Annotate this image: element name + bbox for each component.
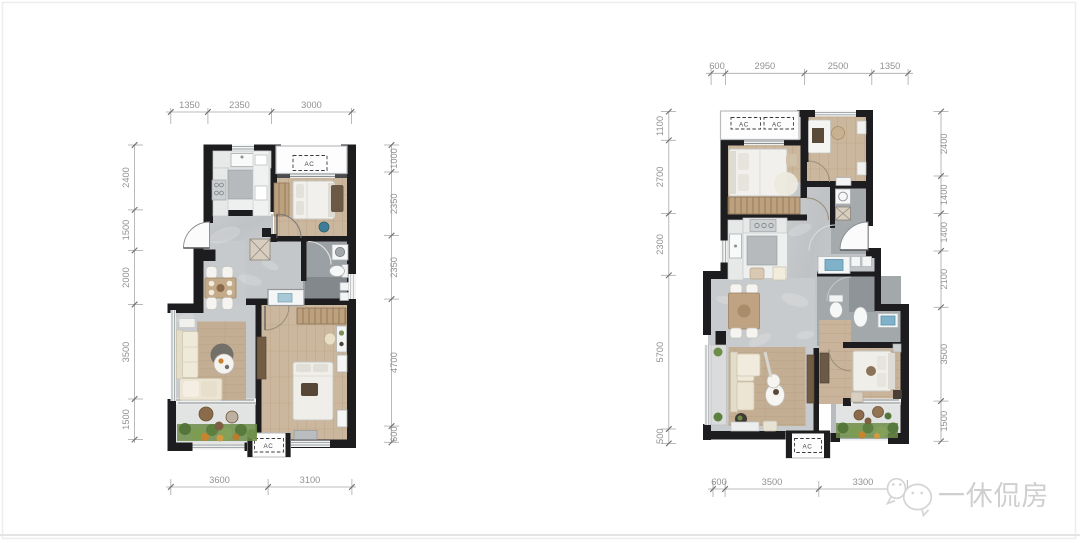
svg-text:1400: 1400 — [939, 222, 949, 243]
svg-text:3500: 3500 — [762, 477, 783, 487]
svg-text:500: 500 — [655, 428, 665, 444]
svg-text:一休侃房: 一休侃房 — [938, 481, 1049, 511]
svg-text:1400: 1400 — [939, 184, 949, 205]
svg-text:2500: 2500 — [828, 61, 849, 71]
svg-text:2700: 2700 — [655, 167, 665, 188]
svg-text:1500: 1500 — [939, 411, 949, 432]
svg-text:3300: 3300 — [853, 477, 874, 487]
svg-text:3600: 3600 — [209, 475, 230, 485]
svg-text:AC: AC — [772, 121, 782, 128]
svg-text:1500: 1500 — [121, 409, 131, 430]
svg-text:2350: 2350 — [389, 257, 399, 278]
svg-text:AC: AC — [739, 121, 749, 128]
svg-text:3000: 3000 — [301, 100, 322, 110]
svg-text:4700: 4700 — [389, 352, 399, 373]
svg-text:600: 600 — [389, 426, 399, 442]
svg-text:3500: 3500 — [121, 342, 131, 363]
svg-text:1500: 1500 — [121, 220, 131, 241]
svg-text:600: 600 — [711, 477, 727, 487]
svg-text:2950: 2950 — [755, 61, 776, 71]
svg-text:2400: 2400 — [939, 133, 949, 154]
svg-text:3100: 3100 — [300, 475, 321, 485]
svg-text:2400: 2400 — [121, 167, 131, 188]
svg-text:2100: 2100 — [939, 269, 949, 290]
svg-text:3500: 3500 — [939, 344, 949, 365]
svg-text:AC: AC — [264, 443, 274, 450]
svg-text:AC: AC — [803, 443, 813, 450]
svg-text:2350: 2350 — [229, 100, 250, 110]
svg-text:2300: 2300 — [655, 234, 665, 255]
svg-text:2350: 2350 — [389, 193, 399, 214]
svg-text:AC: AC — [305, 161, 315, 168]
svg-text:1100: 1100 — [655, 116, 665, 136]
svg-text:1000: 1000 — [389, 148, 399, 169]
svg-text:1350: 1350 — [880, 61, 901, 71]
svg-text:5700: 5700 — [655, 342, 665, 363]
svg-text:2000: 2000 — [121, 267, 131, 288]
svg-text:1350: 1350 — [179, 100, 200, 110]
svg-text:600: 600 — [709, 61, 725, 71]
